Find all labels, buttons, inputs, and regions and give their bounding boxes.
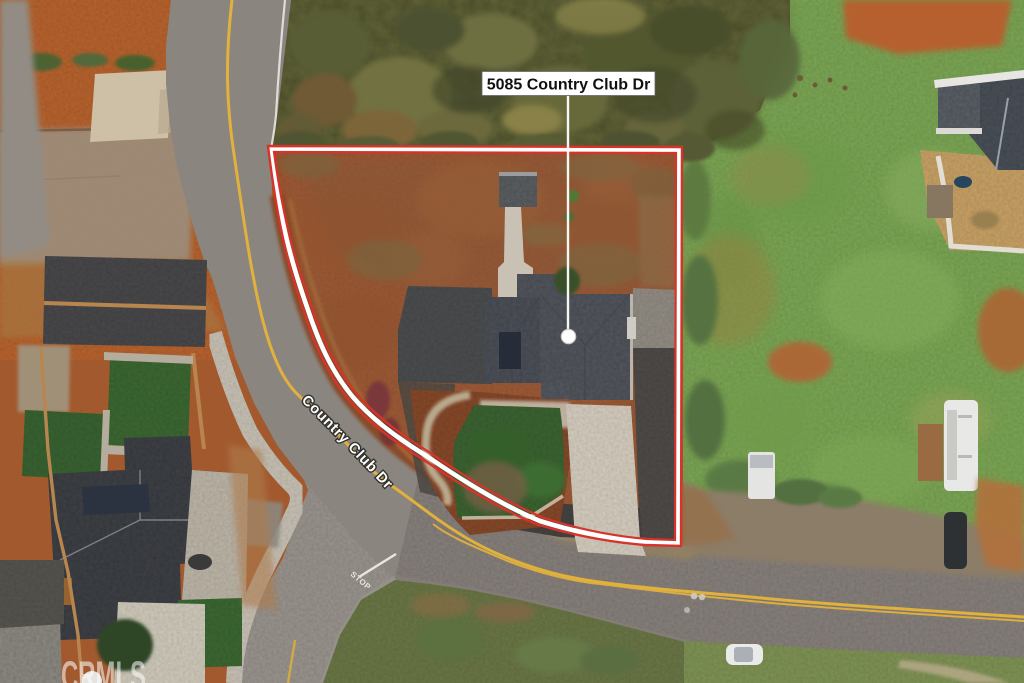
svg-text:CRMLS: CRMLS xyxy=(61,654,146,683)
svg-text:5085 Country Club Dr: 5085 Country Club Dr xyxy=(487,77,651,94)
